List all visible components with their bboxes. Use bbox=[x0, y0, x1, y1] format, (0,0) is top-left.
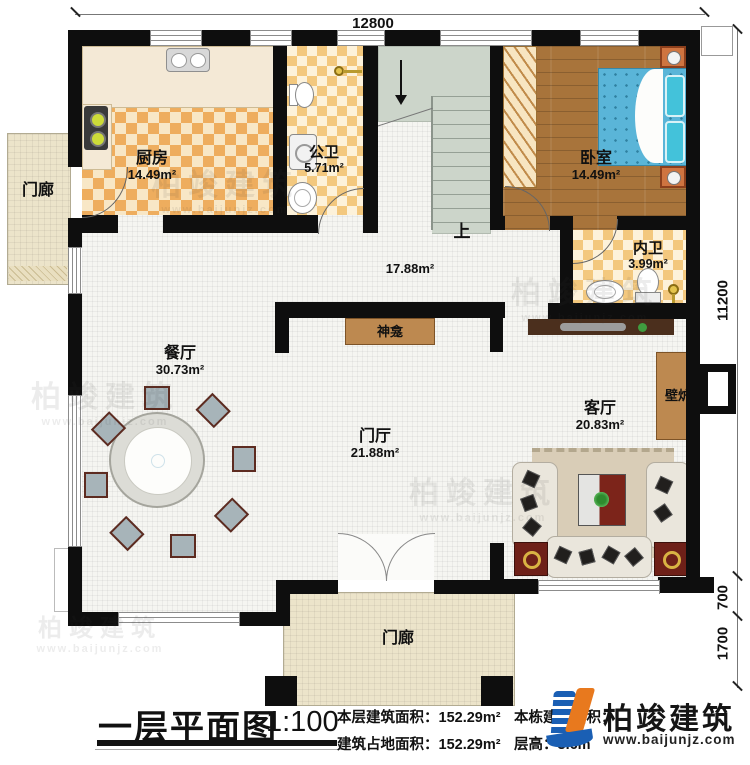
window bbox=[440, 30, 532, 46]
room-area: 14.49m² bbox=[556, 168, 636, 183]
towel-bar-icon bbox=[334, 66, 362, 76]
kitchen-sink-icon bbox=[166, 48, 210, 72]
stat-value: 152.29m² bbox=[439, 737, 501, 753]
nightstand-lamp bbox=[667, 51, 681, 65]
porch-bottom-label: 门廊 bbox=[358, 630, 438, 648]
wall-segment bbox=[383, 30, 440, 46]
room-name: 内卫 bbox=[612, 240, 684, 257]
end-table bbox=[514, 542, 548, 576]
porch-left bbox=[7, 133, 71, 285]
wall-segment bbox=[82, 215, 118, 233]
stat-label: 本层建筑面积： bbox=[337, 710, 439, 726]
wardrobe bbox=[503, 46, 537, 188]
wall-segment bbox=[548, 303, 686, 319]
public-bath-label: 公卫 5.71m² bbox=[292, 144, 356, 176]
title-underline-thick bbox=[97, 740, 337, 746]
exterior-corner-box bbox=[701, 26, 733, 56]
ensuite-label: 内卫 3.99m² bbox=[612, 240, 684, 272]
dim-tick bbox=[70, 7, 81, 18]
floor-plan: 12800 11200 700 1700 厨房 14.49m² bbox=[0, 0, 750, 765]
shrine: 神龛 bbox=[345, 318, 435, 345]
logo-website: www.baijunjz.com bbox=[603, 732, 736, 747]
dining-chair bbox=[170, 534, 196, 558]
hall-area-label: 17.88m² bbox=[375, 262, 445, 277]
living-label: 客厅 20.83m² bbox=[558, 400, 642, 433]
brand-logo: 柏竣建筑 www.baijunjz.com bbox=[545, 686, 745, 762]
room-area: 20.83m² bbox=[558, 418, 642, 433]
nightstand bbox=[660, 46, 686, 68]
stair-arrow-stem bbox=[400, 60, 402, 96]
porch-left-label: 门廊 bbox=[6, 182, 70, 200]
stairs-up-label: 上 bbox=[445, 222, 479, 242]
dim-tick bbox=[699, 7, 710, 18]
wall-segment bbox=[560, 230, 573, 305]
wall-segment bbox=[490, 46, 503, 230]
stat-floor-area: 本层建筑面积：152.29m² bbox=[337, 706, 501, 727]
basin-inner bbox=[294, 189, 311, 207]
stove-icon bbox=[84, 106, 108, 150]
room-name: 门廊 bbox=[6, 182, 70, 200]
toilet-bowl bbox=[295, 82, 314, 108]
wall-segment bbox=[238, 612, 290, 626]
wall-segment bbox=[530, 30, 580, 46]
room-area: 30.73m² bbox=[138, 363, 222, 378]
lazy-susan bbox=[151, 454, 165, 468]
window bbox=[337, 30, 385, 46]
wall-segment bbox=[434, 580, 538, 594]
dim-label-1700: 1700 bbox=[715, 614, 732, 674]
burner bbox=[90, 112, 106, 128]
title-underline-thin bbox=[95, 749, 347, 750]
burner bbox=[90, 131, 106, 147]
stat-label: 建筑占地面积： bbox=[337, 737, 439, 753]
plant-icon bbox=[638, 323, 647, 332]
up-text: 上 bbox=[445, 222, 479, 242]
bedroom-label: 卧室 14.49m² bbox=[556, 150, 636, 183]
porch-left-step-hatch bbox=[9, 266, 67, 281]
basin-inner bbox=[594, 285, 616, 299]
chimney-box bbox=[700, 364, 736, 414]
wall-segment bbox=[68, 30, 82, 167]
window bbox=[538, 580, 660, 594]
wall-segment bbox=[68, 292, 82, 395]
watermark-url: www.baijunjz.com bbox=[0, 643, 200, 655]
nightstand bbox=[660, 166, 686, 188]
room-area: 5.71m² bbox=[292, 161, 356, 175]
basin-icon bbox=[586, 280, 624, 304]
wall-segment bbox=[290, 30, 337, 46]
window bbox=[68, 247, 82, 294]
tv-cabinet bbox=[528, 319, 674, 335]
wall-segment bbox=[363, 46, 378, 233]
dining-chair bbox=[84, 472, 108, 498]
room-name: 公卫 bbox=[292, 144, 356, 161]
dining-chair bbox=[232, 446, 256, 472]
foyer-label: 门厅 21.88m² bbox=[335, 428, 415, 461]
stair-divider bbox=[431, 96, 433, 230]
room-name: 门廊 bbox=[358, 630, 438, 648]
room-name: 卧室 bbox=[556, 150, 636, 168]
toilet-icon bbox=[289, 78, 313, 110]
wall-segment bbox=[287, 215, 318, 233]
sink-bowl bbox=[171, 53, 187, 68]
sofa-right bbox=[646, 462, 690, 548]
nightstand-lamp bbox=[667, 171, 681, 185]
towel-rod bbox=[343, 70, 362, 73]
room-area: 3.99m² bbox=[612, 257, 684, 271]
wall-segment bbox=[163, 215, 273, 233]
plan-scale: 1:100 bbox=[266, 706, 339, 739]
room-name: 厨房 bbox=[112, 150, 192, 168]
tv-icon bbox=[560, 323, 626, 331]
medallion-icon bbox=[663, 551, 681, 569]
logo-icon bbox=[545, 688, 599, 752]
sink-bowl bbox=[190, 53, 206, 68]
bed-sheet bbox=[635, 69, 663, 163]
dining-chair bbox=[144, 386, 170, 410]
wall-segment bbox=[275, 302, 289, 353]
stair-treads bbox=[432, 96, 490, 228]
bed-pillow bbox=[665, 75, 685, 117]
window bbox=[580, 30, 639, 46]
room-area: 17.88m² bbox=[375, 262, 445, 277]
wall-segment bbox=[68, 612, 118, 626]
stat-footprint-area: 建筑占地面积：152.29m² bbox=[337, 733, 501, 754]
wall-segment bbox=[273, 46, 287, 233]
wall-segment bbox=[290, 580, 338, 594]
dim-label-right: 11200 bbox=[715, 261, 732, 341]
coffee-table bbox=[578, 474, 626, 526]
toilet-icon bbox=[634, 268, 660, 304]
end-table bbox=[654, 542, 688, 576]
wall-segment bbox=[550, 216, 573, 230]
wall-segment bbox=[617, 216, 686, 230]
window bbox=[150, 30, 202, 46]
room-name: 客厅 bbox=[558, 400, 642, 418]
stair-arrow-icon bbox=[395, 95, 407, 105]
wall-segment bbox=[490, 318, 503, 352]
room-area: 21.88m² bbox=[335, 446, 415, 461]
table-plant-icon bbox=[594, 492, 609, 507]
porch-column bbox=[481, 676, 513, 706]
wall-segment bbox=[490, 216, 505, 230]
room-area: 14.49m² bbox=[112, 168, 192, 183]
wall-segment bbox=[200, 30, 250, 46]
dining-floor-extension bbox=[82, 580, 276, 612]
kitchen-label: 厨房 14.49m² bbox=[112, 150, 192, 183]
wall-segment bbox=[68, 218, 82, 247]
wall-segment bbox=[686, 30, 700, 593]
medallion-icon bbox=[523, 551, 541, 569]
dim-label-top: 12800 bbox=[338, 15, 408, 32]
stat-value: 152.29m² bbox=[439, 710, 501, 726]
wall-segment bbox=[280, 302, 505, 318]
window bbox=[250, 30, 292, 46]
room-name: 餐厅 bbox=[138, 345, 222, 363]
window bbox=[118, 612, 240, 626]
bed-pillow bbox=[665, 121, 685, 163]
shrine-label: 神龛 bbox=[377, 324, 403, 339]
wall-segment bbox=[658, 577, 714, 593]
room-name: 门厅 bbox=[335, 428, 415, 446]
dimension-line-right bbox=[737, 30, 738, 688]
toilet-tank bbox=[635, 292, 661, 303]
dining-label: 餐厅 30.73m² bbox=[138, 345, 222, 378]
window bbox=[68, 395, 82, 547]
basin-icon bbox=[288, 182, 317, 214]
